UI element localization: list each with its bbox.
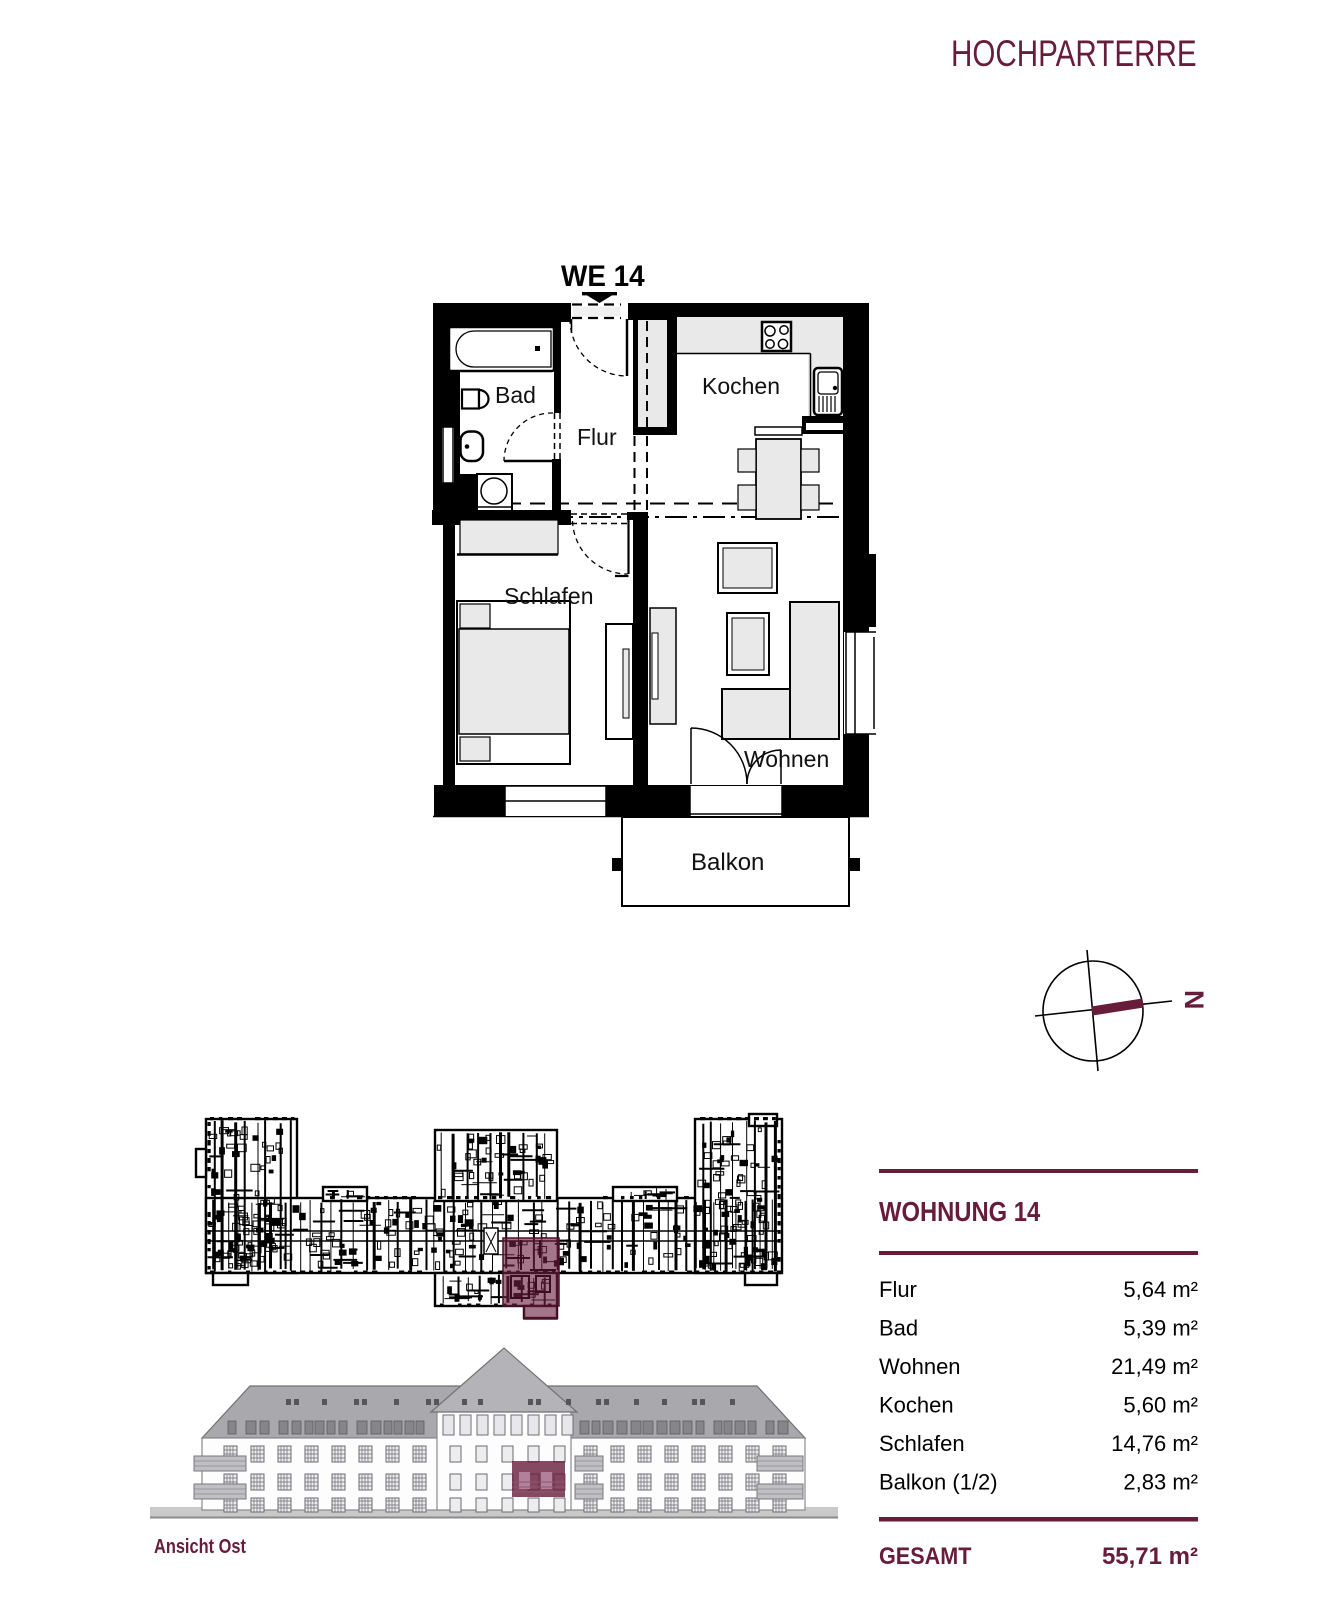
svg-text:Ansicht Ost: Ansicht Ost [154,1534,246,1557]
svg-text:2,83 m²: 2,83 m² [1123,1470,1198,1495]
svg-text:5,64 m²: 5,64 m² [1123,1277,1198,1302]
svg-text:GESAMT: GESAMT [879,1542,971,1569]
svg-text:Balkon: Balkon [691,849,764,876]
svg-text:5,39 m²: 5,39 m² [1123,1316,1198,1341]
svg-text:Kochen: Kochen [702,373,780,399]
svg-text:Schlafen: Schlafen [879,1431,965,1456]
svg-text:N: N [1179,990,1209,1010]
svg-text:Wohnen: Wohnen [744,746,829,772]
svg-text:21,49 m²: 21,49 m² [1111,1354,1198,1379]
svg-text:Flur: Flur [577,424,617,450]
svg-text:HOCHPARTERRE: HOCHPARTERRE [951,34,1197,75]
svg-text:Bad: Bad [495,382,536,408]
svg-text:Flur: Flur [879,1277,917,1302]
svg-text:Balkon (1/2): Balkon (1/2) [879,1470,998,1495]
svg-text:Kochen: Kochen [879,1393,954,1418]
svg-text:55,71 m²: 55,71 m² [1102,1543,1198,1570]
svg-text:WE 14: WE 14 [561,260,645,293]
svg-text:14,76 m²: 14,76 m² [1111,1431,1198,1456]
svg-text:Schlafen: Schlafen [504,583,594,609]
svg-text:WOHNUNG 14: WOHNUNG 14 [879,1195,1041,1227]
svg-text:Bad: Bad [879,1316,918,1341]
svg-text:5,60 m²: 5,60 m² [1123,1393,1198,1418]
svg-text:Wohnen: Wohnen [879,1354,961,1379]
